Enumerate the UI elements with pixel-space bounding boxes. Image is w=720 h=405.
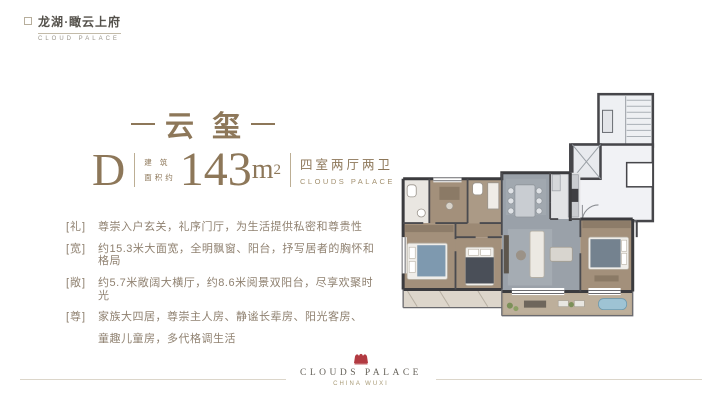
feature-text: 尊崇入户玄关，礼序门厅，为生活提供私密和尊贵性 (98, 221, 378, 234)
unit-spec-row: D 建 筑 面积约 143 m 2 四室两厅两卫 CLOUDS PALACE (92, 146, 395, 194)
feature-text: 家族大四居，尊崇主人房、静谧长辈房、阳光客房、 (98, 311, 378, 324)
layout-en: CLOUDS PALACE (300, 177, 395, 186)
layout-cn: 四室两厅两卫 (300, 154, 395, 173)
area-value: 143 (180, 146, 252, 194)
footer-logo-subtext: CHINA WUXI (333, 381, 389, 387)
brand-name-en: CLOUD PALACE (38, 36, 121, 42)
feature-tag: [尊] (66, 311, 98, 324)
title-dash-left (131, 123, 155, 125)
unit-type-letter: D (92, 147, 125, 193)
crown-emblem-icon (352, 352, 370, 365)
brand-name-cn: 龙湖·瞰云上府 (38, 13, 121, 30)
feature-text: 约15.3米大面宽，全明飘窗、阳台，抒写居者的胸怀和格局 (98, 243, 378, 268)
floorplan-container (383, 78, 675, 350)
footer: CLOUDS PALACE CHINA WUXI (20, 352, 702, 398)
footer-rule-left (20, 379, 286, 380)
spec-divider (134, 153, 135, 187)
feature-item-continuation: 童趣儿童房，多代格调生活 (98, 333, 378, 346)
area-label: 建 筑 面积约 (144, 157, 176, 183)
title-dash-right (251, 123, 275, 125)
feature-item: [敞] 约5.7米敞阔大横厅，约8.6米阅景双阳台，尽享欢聚时光 (66, 277, 378, 302)
feature-list: [礼] 尊崇入户玄关，礼序门厅，为生活提供私密和尊贵性 [宽] 约15.3米大面… (66, 221, 378, 354)
brand-underline (38, 33, 121, 34)
feature-item: [宽] 约15.3米大面宽，全明飘窗、阳台，抒写居者的胸怀和格局 (66, 243, 378, 268)
feature-item: [礼] 尊崇入户玄关，礼序门厅，为生活提供私密和尊贵性 (66, 221, 378, 234)
brand-logo: 龙湖·瞰云上府 CLOUD PALACE (24, 13, 121, 42)
floorplan-image (383, 78, 675, 350)
feature-tag: [礼] (66, 221, 98, 234)
stair-core (598, 94, 652, 146)
feature-text: 约5.7米敞阔大横厅，约8.6米阅景双阳台，尽享欢聚时光 (98, 277, 378, 302)
unit-title: 云玺 (118, 103, 288, 145)
area-label-line2: 面积约 (144, 172, 176, 183)
footer-logo-text: CLOUDS PALACE (300, 368, 422, 378)
brand-seal-icon (24, 17, 32, 25)
area-unit-sup: 2 (274, 162, 282, 179)
brand-text-block: 龙湖·瞰云上府 CLOUD PALACE (38, 13, 121, 42)
feature-tag: [宽] (66, 243, 98, 268)
feature-item: [尊] 家族大四居，尊崇主人房、静谧长辈房、阳光客房、 (66, 311, 378, 324)
area-unit: m (252, 154, 274, 186)
footer-logo: CLOUDS PALACE CHINA WUXI (286, 352, 436, 387)
area-label-line1: 建 筑 (144, 157, 176, 168)
brochure-page: 龙湖·瞰云上府 CLOUD PALACE 云玺 D 建 筑 面积约 143 m … (0, 0, 720, 405)
spec-divider (290, 153, 291, 187)
layout-block: 四室两厅两卫 CLOUDS PALACE (300, 154, 395, 186)
footer-rule-right (436, 379, 702, 380)
unit-title-text: 云玺 (165, 103, 259, 145)
feature-tag: [敞] (66, 277, 98, 302)
feature-text: 童趣儿童房，多代格调生活 (98, 333, 378, 346)
